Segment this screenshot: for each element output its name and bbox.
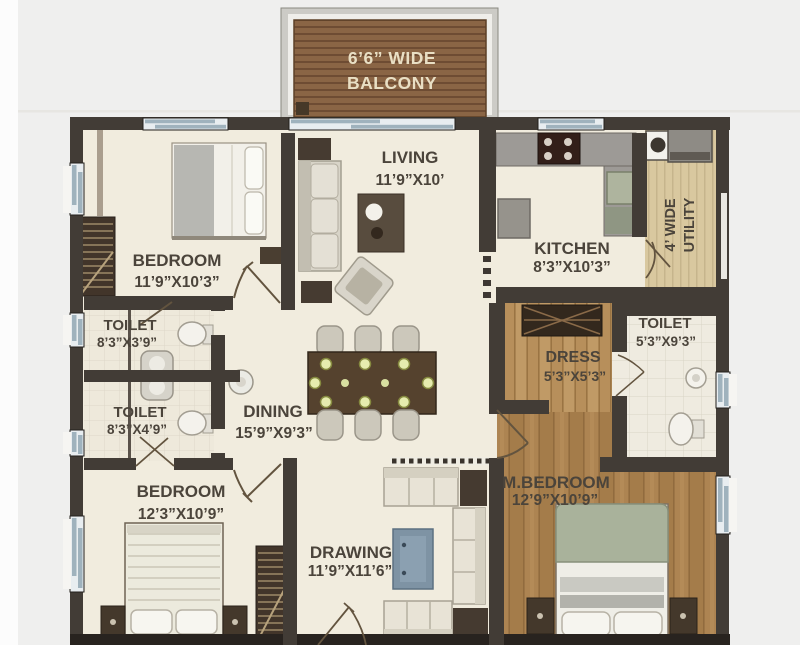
- svg-text:12’3”X10’9”: 12’3”X10’9”: [138, 506, 224, 523]
- svg-text:TOILET: TOILET: [638, 315, 691, 332]
- svg-text:6’6” WIDE: 6’6” WIDE: [348, 48, 436, 68]
- svg-text:TOILET: TOILET: [113, 404, 166, 421]
- svg-text:8’3”X10’3”: 8’3”X10’3”: [533, 259, 611, 276]
- svg-text:11’9”X11’6”: 11’9”X11’6”: [308, 563, 392, 580]
- svg-text:DRESS: DRESS: [545, 349, 600, 366]
- svg-text:BEDROOM: BEDROOM: [137, 482, 226, 501]
- svg-text:KITCHEN: KITCHEN: [534, 239, 610, 258]
- svg-text:DRAWING: DRAWING: [310, 543, 392, 562]
- svg-text:11’9”X10’3”: 11’9”X10’3”: [134, 274, 219, 291]
- svg-text:11’9”X10’: 11’9”X10’: [376, 172, 445, 189]
- svg-text:TOILET: TOILET: [103, 317, 156, 334]
- svg-text:15’9”X9’3”: 15’9”X9’3”: [235, 425, 313, 442]
- svg-text:BEDROOM: BEDROOM: [133, 251, 222, 270]
- svg-text:UTILITY: UTILITY: [682, 197, 698, 252]
- svg-text:BALCONY: BALCONY: [347, 73, 437, 93]
- svg-text:5’3”X5’3”: 5’3”X5’3”: [544, 368, 606, 384]
- svg-text:4’ WIDE: 4’ WIDE: [663, 198, 679, 252]
- svg-text:8’3”X3’9”: 8’3”X3’9”: [97, 335, 157, 350]
- svg-text:12’9”X10’9”: 12’9”X10’9”: [512, 492, 598, 509]
- svg-text:M.BEDROOM: M.BEDROOM: [502, 473, 610, 492]
- svg-text:8’3”X4’9”: 8’3”X4’9”: [107, 422, 167, 437]
- svg-text:5’3”X9’3”: 5’3”X9’3”: [636, 334, 696, 349]
- svg-text:DINING: DINING: [243, 402, 303, 421]
- svg-text:LIVING: LIVING: [382, 148, 439, 167]
